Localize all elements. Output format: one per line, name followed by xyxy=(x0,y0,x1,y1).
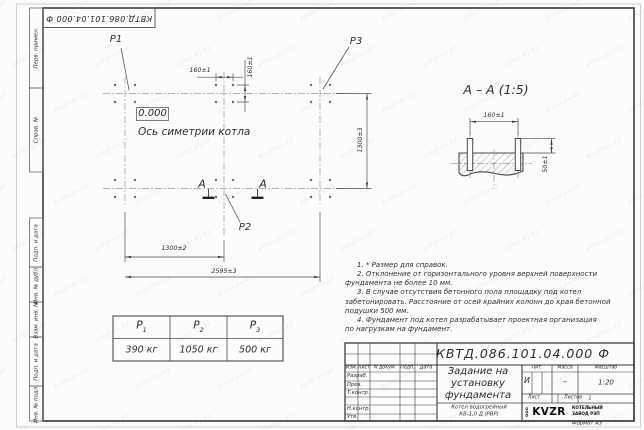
load-table-header-p2: P2 xyxy=(193,321,203,334)
p-sub: 2 xyxy=(200,326,204,334)
doc-title-line2: установку xyxy=(451,379,505,389)
margin-label-sprav-no: Справ. № xyxy=(34,117,40,144)
section-view xyxy=(451,118,556,189)
dim-plan-height: 1300±3 xyxy=(358,127,364,152)
sheet-frame xyxy=(17,4,641,427)
p-sub: 3 xyxy=(256,326,260,334)
margin-label-inv-podl: Инв. № подл. xyxy=(34,385,40,423)
margin-label-vzam-inv: Взам. инв. № xyxy=(34,301,40,338)
product-name-line2: КВ-1,0 Д (РВР) xyxy=(459,412,498,417)
product-name-line1: Котел водогрейный xyxy=(451,405,507,410)
tb-col-list: Лист xyxy=(358,366,370,371)
tb-sheet-label: Лист xyxy=(528,396,540,401)
load-value-p1: 390 кг xyxy=(126,345,158,355)
note-item: 4. Фундамент под котел разрабатывает про… xyxy=(345,316,637,334)
section-letter-right: А xyxy=(259,178,267,189)
note-item: 3. В случае отсутствия бетонного пола пл… xyxy=(345,288,637,315)
dim-bolt-protrusion: 50±1 xyxy=(543,155,549,172)
tb-row-nkontr: Н.контр. xyxy=(347,407,370,412)
dim-bolt-spacing-y: 160±1 xyxy=(247,56,253,77)
margin-label-podp-data-1: Подп. и дата xyxy=(34,224,40,261)
load-table-header-p3: P3 xyxy=(250,321,260,334)
level-mark-value: 0.000 xyxy=(138,109,167,119)
margin-label-perv-primen: Перв. примен. xyxy=(34,27,40,68)
format-label: Формат А3 xyxy=(572,421,602,426)
drawing-designation: КВТД.086.101.04.000 Ф xyxy=(436,348,610,361)
tb-lit-value: И xyxy=(524,377,530,385)
tb-sheets-label: Листов xyxy=(564,396,582,401)
tb-row-tkontr: Т.контр. xyxy=(347,391,369,396)
tb-lit-label: Лит. xyxy=(531,366,542,371)
plan-bolt-dots xyxy=(114,84,331,198)
technical-notes: 1. * Размер для справок. 2. Отклонение о… xyxy=(345,261,637,334)
load-point-p1-label: P1 xyxy=(110,35,122,45)
dim-half-width: 1300±2 xyxy=(161,246,186,252)
load-table-header-p1: P1 xyxy=(136,321,146,334)
tb-row-prov: Пров. xyxy=(347,383,362,388)
tb-mass-value: – xyxy=(563,378,567,386)
company-ooo: ООО xyxy=(525,407,529,417)
tb-col-dokum: N докум. xyxy=(374,366,396,371)
dim-full-width: 2595±3 xyxy=(211,268,236,274)
tb-col-data: Дата xyxy=(420,366,432,371)
company-name-line2: ЗАВОД РЭП xyxy=(572,412,600,416)
tb-scale-value: 1:20 xyxy=(598,379,614,386)
load-value-p3: 500 кг xyxy=(239,345,271,355)
note-item: 2. Отклонение от горизонтального уровня … xyxy=(345,270,637,288)
dim-bolt-spacing-x: 160±1 xyxy=(189,67,210,73)
boiler-axis-label: Ось симетрии котла xyxy=(138,127,250,138)
p-sub: 1 xyxy=(143,326,147,334)
tb-mass-label: Масса xyxy=(557,366,572,371)
load-point-p3-label: P3 xyxy=(350,37,362,47)
doc-title-line1: Задание на xyxy=(448,367,509,377)
drawing-linework xyxy=(0,0,644,430)
tb-row-razrab: Разраб. xyxy=(347,374,367,379)
load-value-p2: 1050 кг xyxy=(180,345,218,355)
margin-label-inv-dubl: Инв. № дубл. xyxy=(34,266,40,304)
tb-row-utv: Утв. xyxy=(347,415,358,420)
tb-col-podp: Подп. xyxy=(400,366,415,371)
section-letter-left: А xyxy=(198,178,206,189)
plan-centerlines xyxy=(103,72,348,236)
note-item: 1. * Размер для справок. xyxy=(345,261,637,270)
top-corner-designation: КВТД.086.101.04.000 Ф xyxy=(46,14,152,22)
tb-sheets-value: 1 xyxy=(588,396,591,401)
tb-col-izm: Изм. xyxy=(346,366,357,371)
section-view-title: А – А (1:5) xyxy=(463,84,528,97)
margin-label-podp-data-2: Подп. и дата xyxy=(34,343,40,380)
doc-title-line3: фундамента xyxy=(445,391,511,401)
company-name-line1: КОТЕЛЬНЫЙ xyxy=(572,406,603,410)
load-point-p2-label: P2 xyxy=(239,223,251,233)
dim-section-bolt-spacing: 160±1 xyxy=(483,112,504,118)
tb-scale-label: Масштаб xyxy=(595,366,618,371)
drawing-sheet: kotel-kv.kzkotel-kv.kzkotel-kv.kzkotel-k… xyxy=(0,0,644,430)
company-logo: KVZR xyxy=(532,406,566,417)
